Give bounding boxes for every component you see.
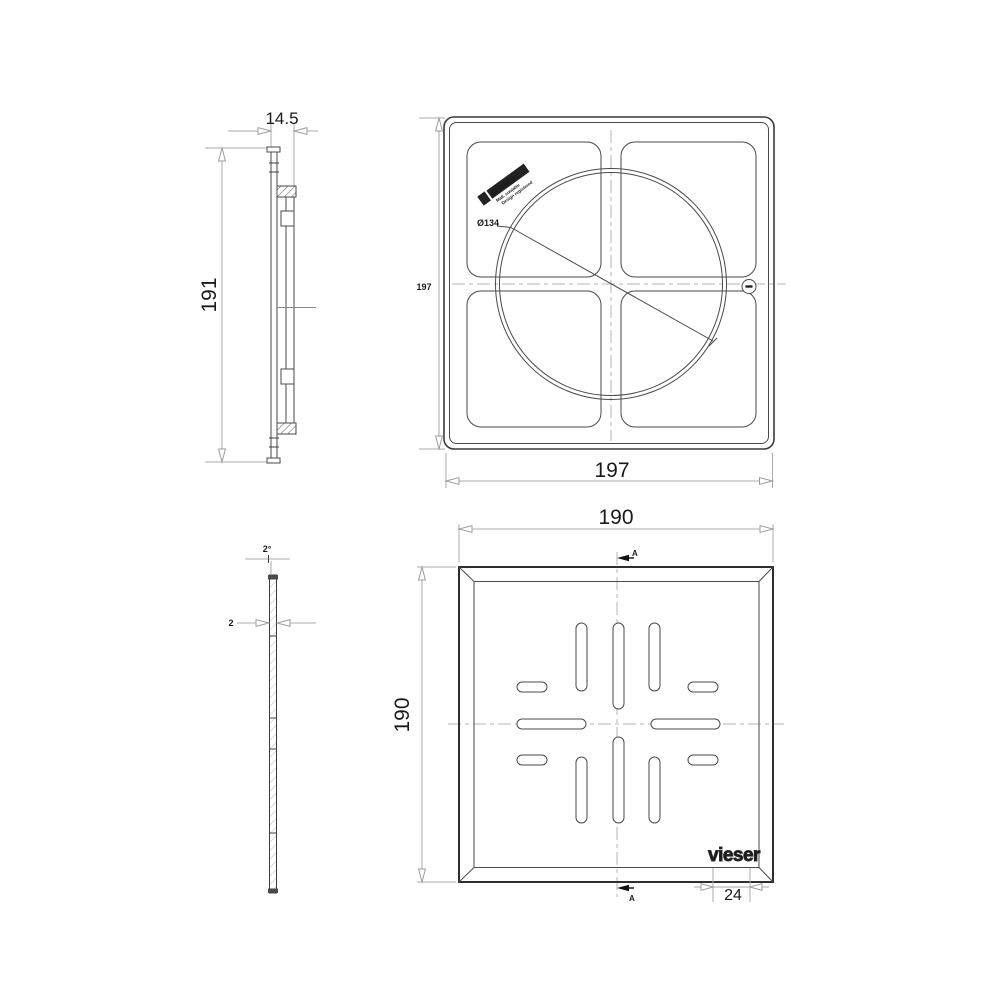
dim-frame-side-width: 14.5 — [265, 109, 298, 128]
dim-grate-draft-angle: 2° — [263, 544, 272, 554]
dim-grate-front-height: 190 — [391, 697, 414, 732]
frame-front-view: SERRES® Mall. suojattu Design registered — [419, 117, 786, 488]
screw-detail — [742, 280, 756, 294]
frame-side-view — [205, 123, 318, 463]
dim-frame-side-height: 191 — [198, 277, 221, 312]
technical-drawing-canvas: SERRES® Mall. suojattu Design registered — [0, 0, 1000, 1000]
grate-slots — [517, 623, 720, 823]
dim-frame-front-height: 197 — [416, 282, 431, 292]
serres-logo: SERRES® Mall. suojattu Design registered — [477, 163, 536, 215]
frame-panel-top-left — [467, 142, 601, 277]
dim-logo-width: 24 — [724, 887, 742, 904]
section-mark-bottom — [617, 885, 634, 891]
dim-grate-thickness: 2 — [228, 618, 233, 628]
dim-frame-opening-diameter: Ø134 — [477, 218, 499, 228]
drawing-sheet: SERRES® Mall. suojattu Design registered — [0, 0, 1000, 1000]
frame-rim-section-top — [277, 186, 296, 197]
vieser-logo: vieser — [708, 845, 761, 866]
section-label-top: A — [632, 549, 638, 558]
frame-panel-bottom-left — [467, 291, 601, 427]
frame-rim-section-bottom — [277, 423, 296, 434]
frame-panel-top-right — [621, 142, 756, 277]
dim-grate-front-width: 190 — [598, 506, 633, 529]
grate-plate-section — [270, 575, 277, 893]
section-label-bottom: A — [629, 894, 635, 903]
dim-frame-front-width: 197 — [594, 459, 629, 482]
frame-panel-bottom-right — [621, 291, 756, 427]
grate-side-view — [237, 555, 316, 893]
